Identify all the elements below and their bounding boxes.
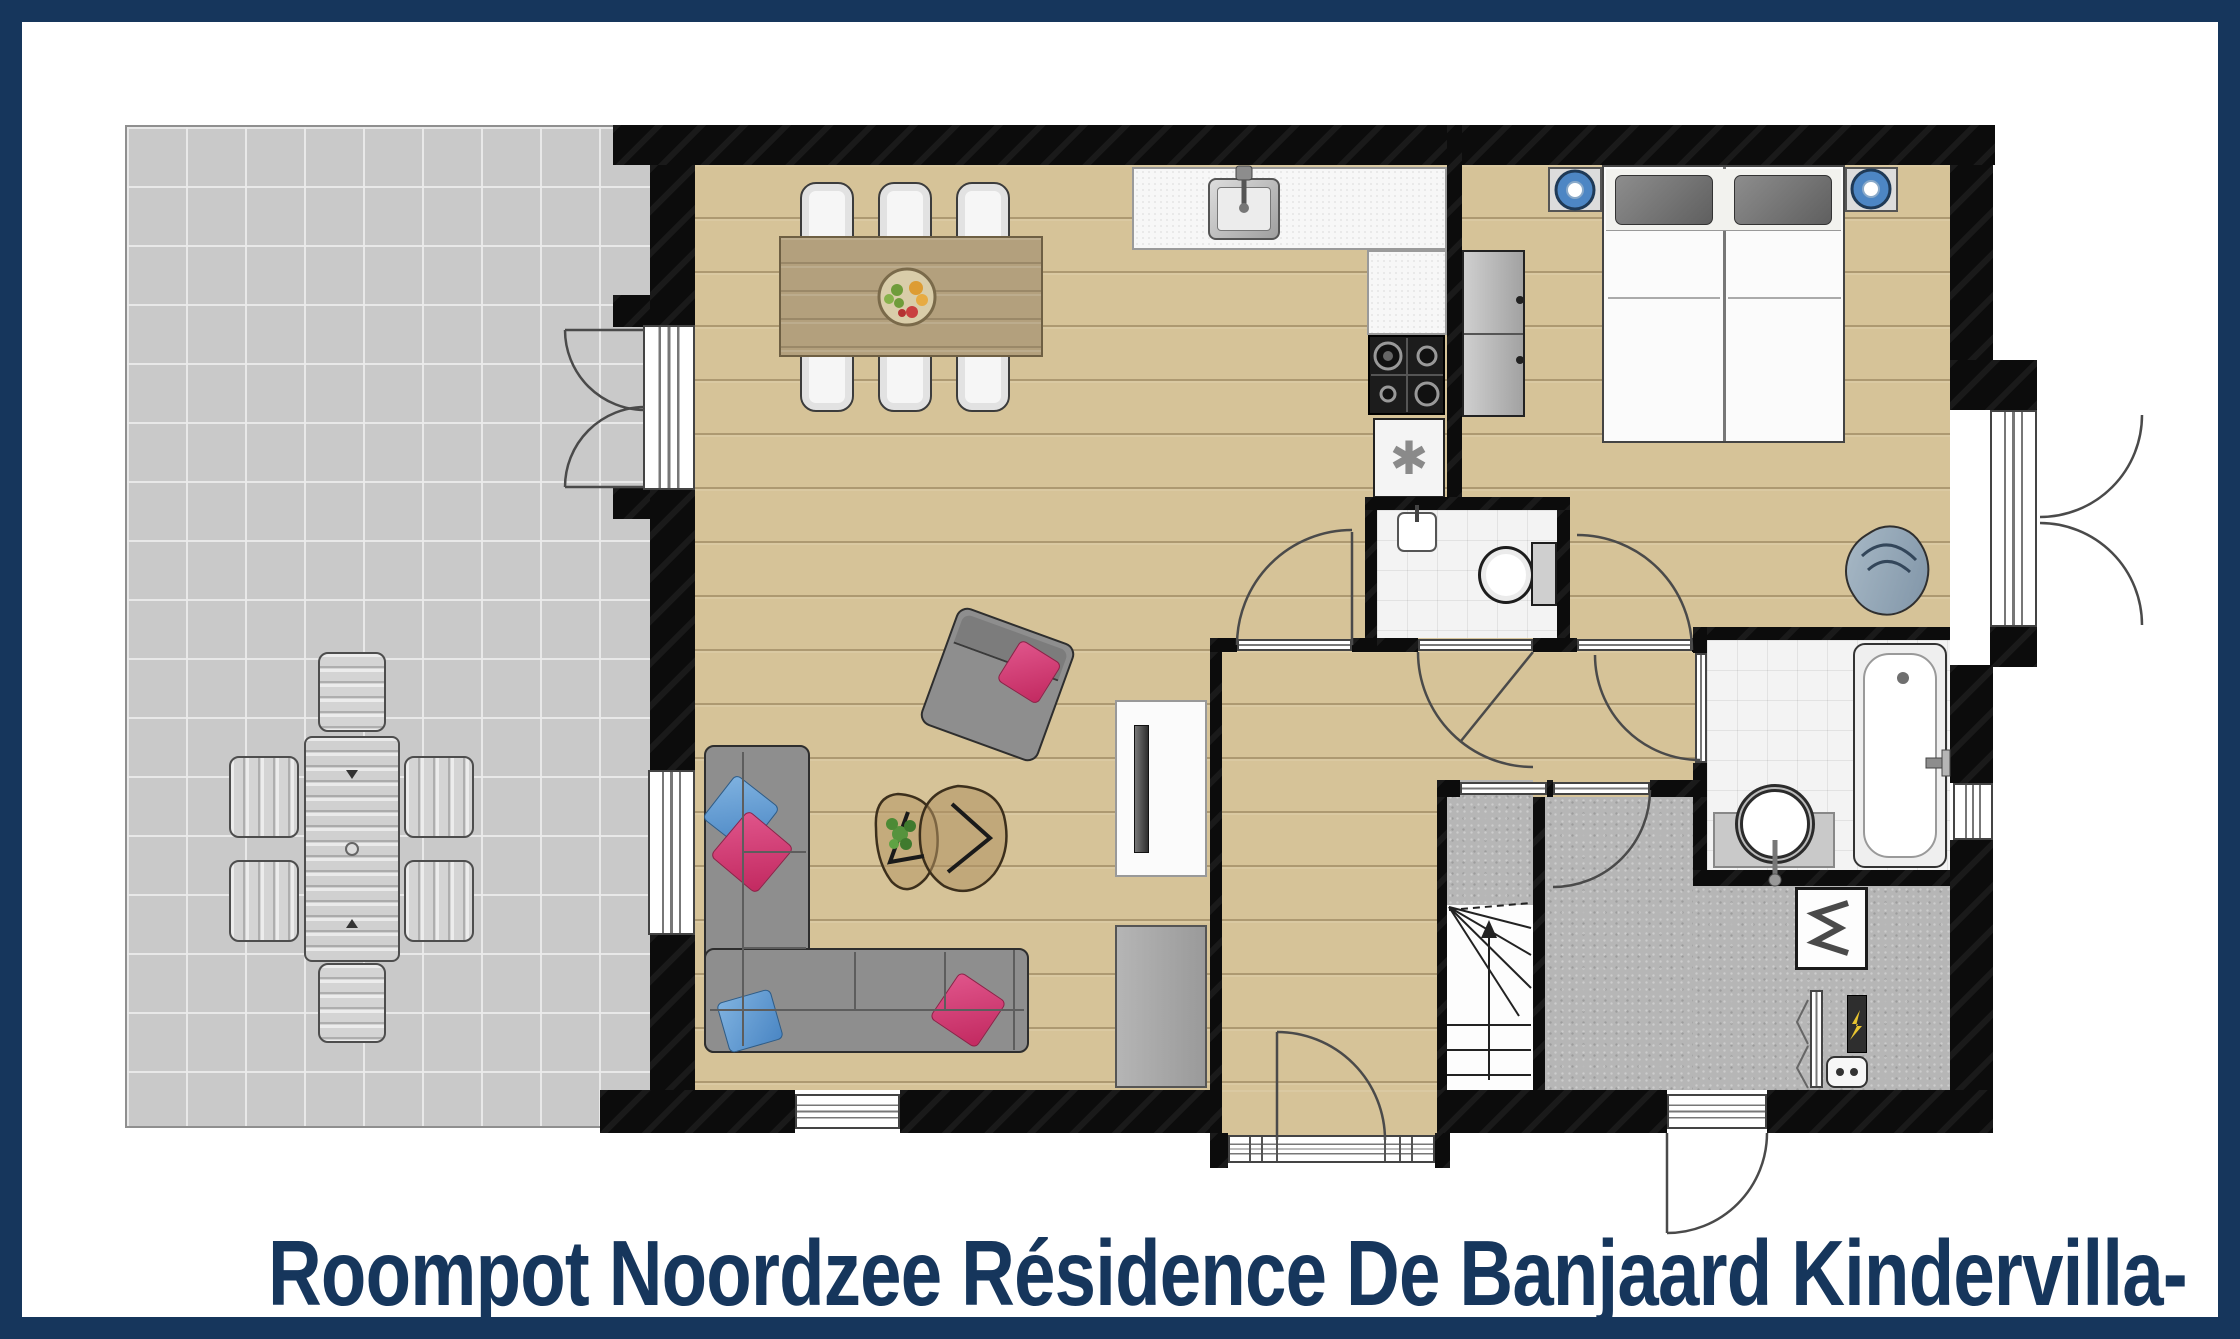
duvet-fold bbox=[1728, 297, 1841, 299]
wall-entrance bbox=[1210, 1133, 1228, 1168]
wc-door-frame bbox=[1418, 639, 1533, 651]
wall-hall-utility bbox=[1650, 780, 1707, 797]
wall-wc-right bbox=[1557, 510, 1570, 652]
toilet-cistern bbox=[1531, 542, 1557, 606]
bay-door-arc bbox=[2040, 523, 2142, 625]
utility-door-frame bbox=[1553, 782, 1650, 795]
frame-bottom bbox=[0, 1317, 2240, 1339]
wardrobe-divider bbox=[1464, 333, 1523, 335]
living-bottom-window bbox=[795, 1094, 900, 1129]
meter-bifold-door bbox=[1810, 990, 1823, 1088]
terrace-chair bbox=[318, 652, 386, 732]
wall-stairs-left bbox=[1437, 797, 1447, 1090]
frame-right bbox=[2218, 0, 2240, 1339]
floorplan-canvas: ✱ bbox=[0, 0, 2240, 1339]
wall-bottom bbox=[1767, 1090, 1993, 1133]
wall-bottom bbox=[1437, 1090, 1667, 1133]
bay-wall-bottom bbox=[1990, 625, 2037, 667]
wall-left bbox=[650, 165, 695, 325]
toilet-bowl bbox=[1478, 546, 1534, 604]
wall-hall bbox=[1377, 638, 1418, 652]
gas-hob bbox=[1368, 335, 1445, 415]
boiler bbox=[1795, 887, 1868, 970]
wall-bathroom-left bbox=[1693, 627, 1707, 653]
frame-left bbox=[0, 0, 22, 1339]
twin-beds bbox=[1602, 165, 1845, 443]
small-appliance bbox=[1826, 1056, 1868, 1088]
tv bbox=[1134, 725, 1149, 853]
bathtub-inner bbox=[1863, 653, 1937, 858]
wall-bottom bbox=[900, 1090, 1222, 1133]
wall-left bbox=[650, 935, 695, 1090]
terrace-floor bbox=[125, 125, 652, 1128]
freezer-cabinet: ✱ bbox=[1373, 418, 1445, 498]
meter-strip bbox=[1847, 995, 1867, 1053]
wall-bottom bbox=[600, 1090, 795, 1133]
tv-cabinet bbox=[1115, 700, 1207, 877]
terrace-chair bbox=[404, 860, 474, 942]
wall-right bbox=[1950, 840, 1993, 1090]
back-door-frame bbox=[1667, 1094, 1767, 1129]
front-door-frame bbox=[1228, 1135, 1435, 1163]
wc-hand-basin bbox=[1397, 512, 1437, 552]
terrace-french-doors-frame bbox=[643, 325, 695, 490]
pillow-gray bbox=[1734, 175, 1832, 225]
stairs-opening-frame bbox=[1460, 782, 1547, 795]
wall-hall bbox=[1210, 638, 1237, 652]
terrace-chair bbox=[318, 963, 386, 1043]
bay-door-arc bbox=[2040, 415, 2142, 517]
duvet-fold bbox=[1608, 297, 1720, 299]
freezer-asterisk-icon: ✱ bbox=[1390, 431, 1429, 485]
wall-stairs-right bbox=[1533, 797, 1545, 1090]
dining-table bbox=[779, 236, 1043, 357]
bay-wall-top bbox=[1950, 360, 2037, 410]
terrace-chair bbox=[404, 756, 474, 838]
terrace-table bbox=[304, 736, 400, 962]
frame-top bbox=[0, 0, 2240, 22]
living-window bbox=[648, 770, 695, 935]
kitchen-counter bbox=[1132, 167, 1447, 250]
nightstand bbox=[1548, 167, 1602, 212]
wall-entrance bbox=[1435, 1133, 1450, 1168]
bay-french-doors-frame bbox=[1990, 410, 2037, 627]
wall-bathroom-top bbox=[1707, 627, 1950, 640]
wall-hall bbox=[1352, 638, 1377, 652]
wall-nub bbox=[613, 295, 650, 327]
terrace-chair bbox=[229, 756, 299, 838]
wall-kitchen-bedroom bbox=[1447, 125, 1462, 510]
staircase bbox=[1447, 905, 1533, 1090]
bathroom-window bbox=[1953, 783, 1993, 840]
wall-hall-utility bbox=[1437, 780, 1460, 797]
stair-landing bbox=[1447, 780, 1533, 905]
wall-nub bbox=[613, 487, 650, 519]
terrace-chair bbox=[229, 860, 299, 942]
pillow-gray bbox=[1615, 175, 1713, 225]
washbasin-counter bbox=[1713, 812, 1835, 868]
sideboard bbox=[1115, 925, 1207, 1088]
wall-wc-top bbox=[1365, 497, 1570, 510]
wardrobe bbox=[1462, 250, 1525, 417]
wall-bathroom-bottom bbox=[1693, 870, 1950, 886]
wall-wc-left bbox=[1365, 510, 1377, 652]
wall-living-hall bbox=[1210, 652, 1222, 1133]
nightstand bbox=[1845, 167, 1898, 212]
back-door-arc bbox=[1667, 1133, 1767, 1233]
living-door-frame bbox=[1237, 639, 1352, 651]
kitchen-sink bbox=[1208, 178, 1280, 240]
bathroom-door-frame bbox=[1695, 653, 1707, 763]
kitchen-counter bbox=[1367, 250, 1447, 335]
entrance-floor bbox=[1222, 1090, 1437, 1137]
bedroom-door-frame bbox=[1577, 639, 1692, 651]
wall-top bbox=[613, 125, 1995, 165]
caption-title: Roompot Noordzee Résidence De Banjaard K… bbox=[268, 1220, 2187, 1327]
bathtub bbox=[1853, 643, 1947, 868]
wall-left bbox=[650, 490, 695, 770]
utility-floor bbox=[1545, 797, 1693, 1090]
wall-right bbox=[1950, 665, 1993, 783]
wall-right bbox=[1950, 165, 1993, 367]
wall-hall bbox=[1533, 638, 1577, 652]
sink-basin bbox=[1217, 187, 1271, 231]
